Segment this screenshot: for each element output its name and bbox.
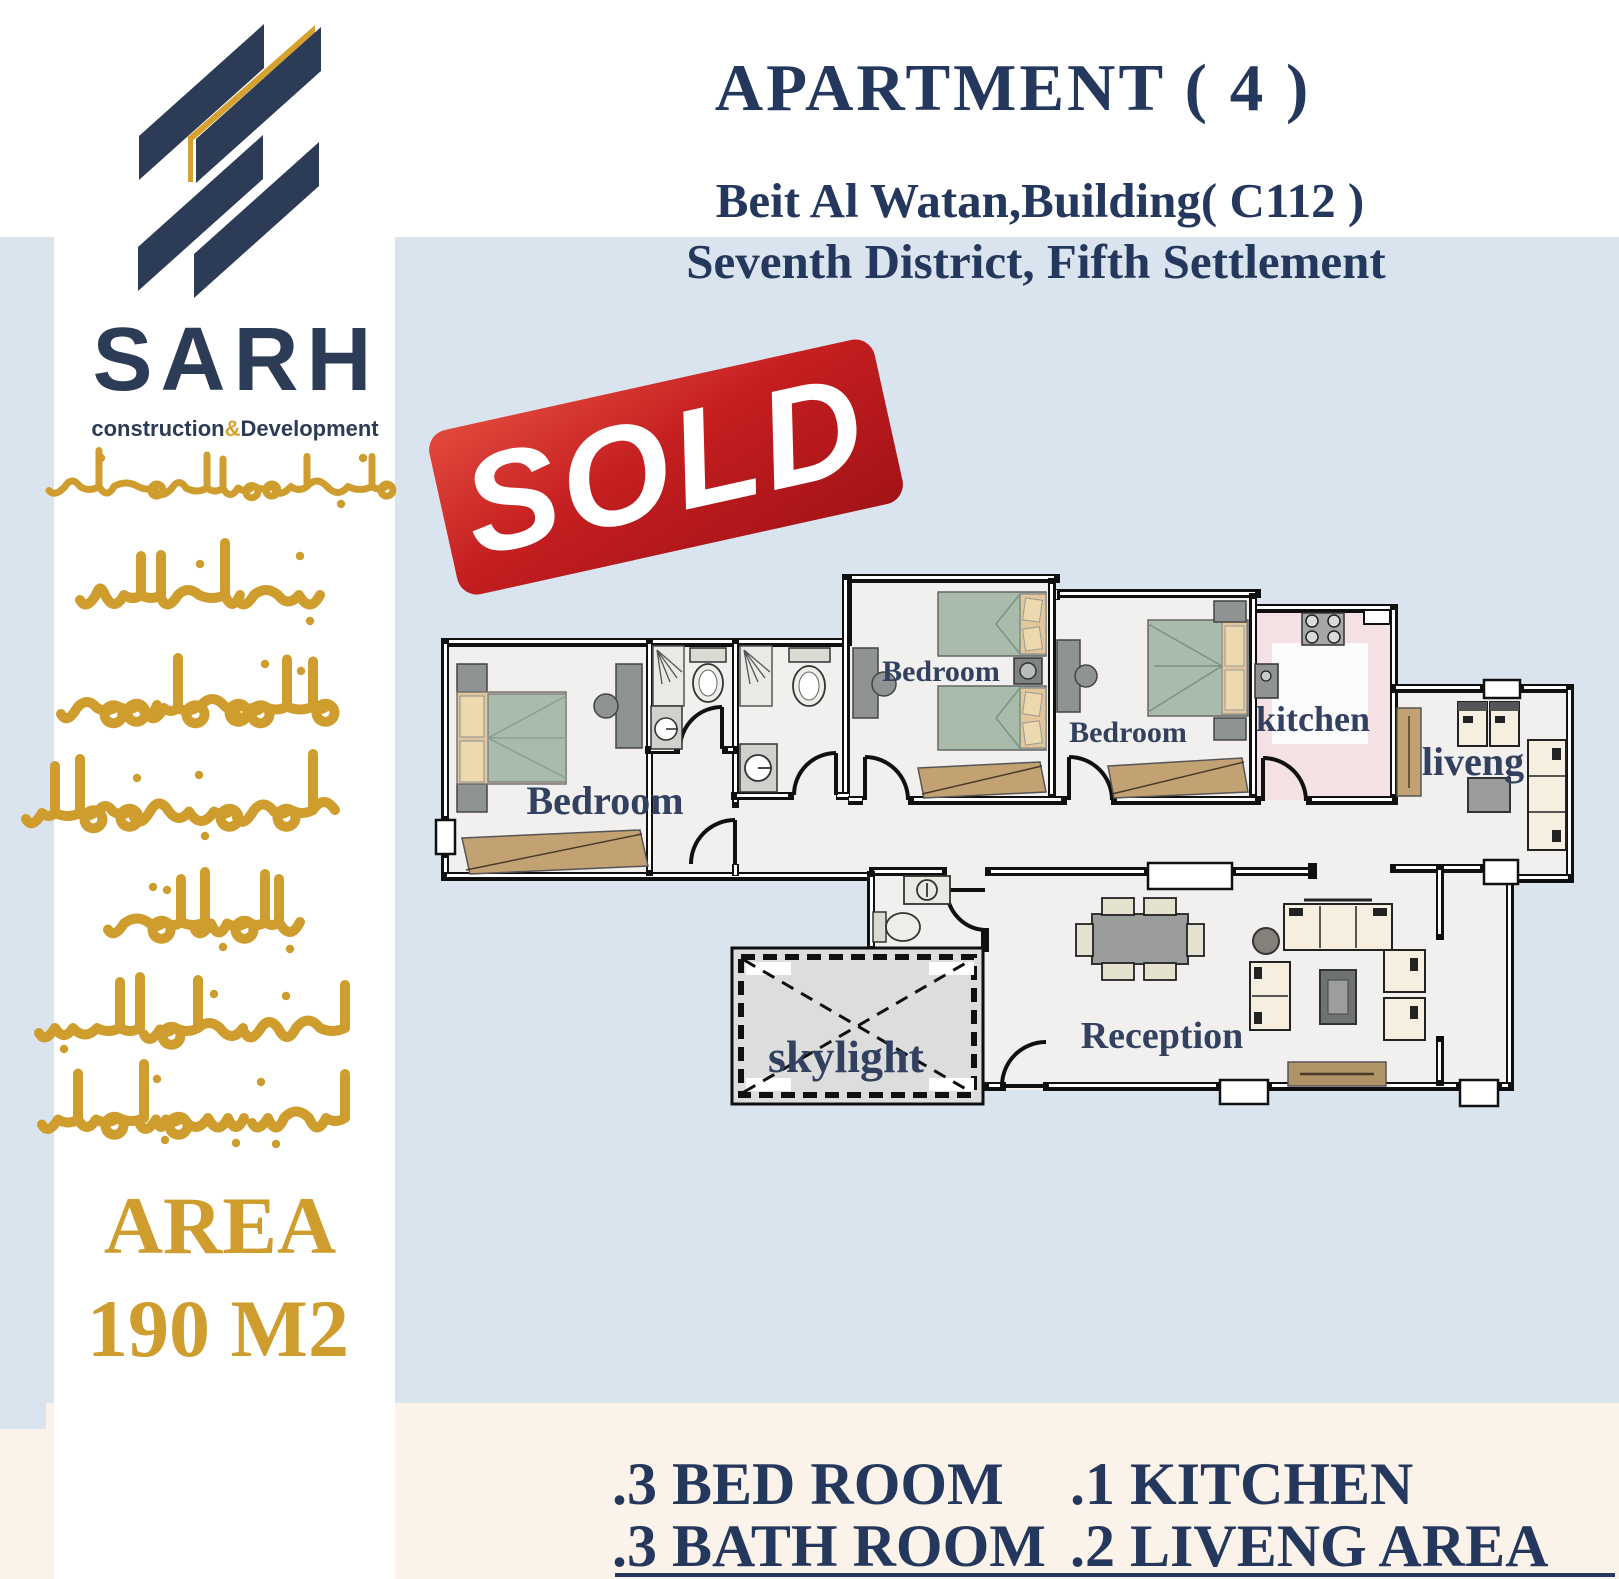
svg-text:liveng: liveng — [1422, 739, 1524, 784]
svg-text:.2 LIVENG AREA: .2 LIVENG AREA — [1070, 1513, 1548, 1579]
svg-text:.1 KITCHEN: .1 KITCHEN — [1070, 1451, 1413, 1517]
svg-text:construction&Development: construction&Development — [91, 416, 379, 441]
svg-text:Bedroom: Bedroom — [526, 778, 683, 823]
svg-text:SARH: SARH — [92, 310, 379, 410]
svg-text:190 M2: 190 M2 — [87, 1283, 349, 1374]
svg-text:Reception: Reception — [1081, 1015, 1244, 1057]
svg-text:Beit Al Watan,Building( C112 ): Beit Al Watan,Building( C112 ) — [716, 173, 1364, 228]
svg-text:.3 BED ROOM: .3 BED ROOM — [612, 1451, 1004, 1517]
svg-text:skylight: skylight — [768, 1031, 925, 1082]
svg-text:Seventh District, Fifth Settle: Seventh District, Fifth Settlement — [686, 234, 1386, 289]
svg-text:Bedroom: Bedroom — [1069, 716, 1187, 749]
svg-text:APARTMENT ( 4 ): APARTMENT ( 4 ) — [715, 51, 1312, 125]
svg-text:.3 BATH ROOM: .3 BATH ROOM — [612, 1513, 1046, 1579]
svg-text:Bedroom: Bedroom — [882, 655, 1000, 688]
svg-text:kitchen: kitchen — [1256, 699, 1370, 739]
svg-text:AREA: AREA — [104, 1180, 336, 1271]
